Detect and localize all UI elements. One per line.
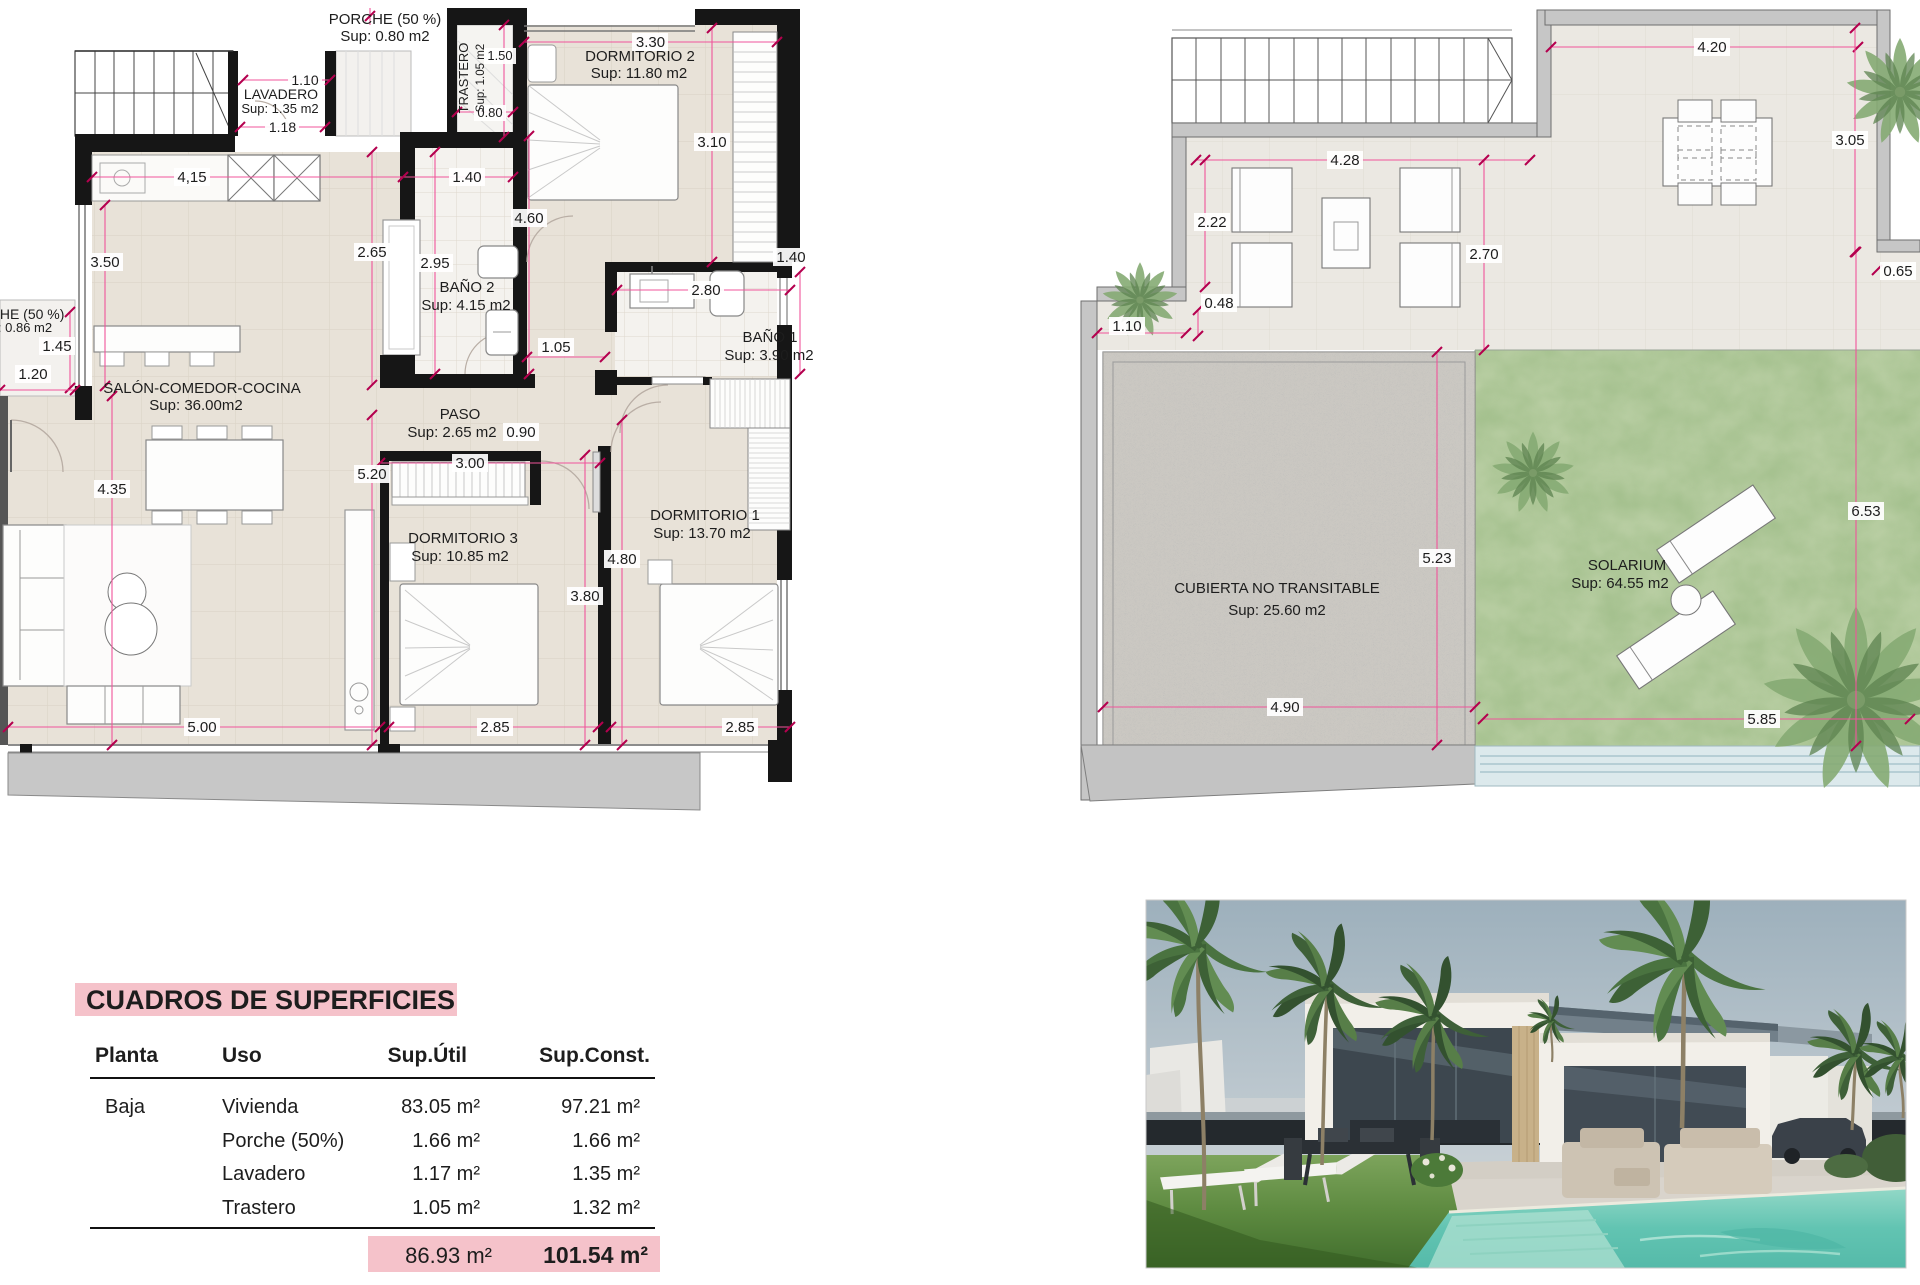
svg-text:BAÑO 1: BAÑO 1 <box>742 329 797 346</box>
svg-text:BAÑO 2: BAÑO 2 <box>439 279 494 296</box>
svg-text:2.65: 2.65 <box>357 244 386 261</box>
svg-text:2.85: 2.85 <box>725 719 754 736</box>
svg-text:CUADROS DE SUPERFICIES: CUADROS DE SUPERFICIES <box>86 985 455 1015</box>
svg-text:DORMITORIO 1: DORMITORIO 1 <box>650 507 760 524</box>
svg-text:1.10: 1.10 <box>1112 318 1141 335</box>
svg-text:1.18: 1.18 <box>269 119 296 135</box>
svg-text:Sup: 3.90 m2: Sup: 3.90 m2 <box>724 347 813 364</box>
svg-text:1.40: 1.40 <box>452 169 481 186</box>
svg-text:1.66 m²: 1.66 m² <box>412 1130 480 1152</box>
svg-text:Baja: Baja <box>105 1096 146 1118</box>
svg-text:4.35: 4.35 <box>97 481 126 498</box>
svg-text:Trastero: Trastero <box>222 1197 296 1219</box>
svg-text:PORCHE (50 %): PORCHE (50 %) <box>329 11 442 28</box>
svg-text:4.80: 4.80 <box>607 551 636 568</box>
svg-text:97.21 m²: 97.21 m² <box>561 1096 640 1118</box>
svg-text:5.20: 5.20 <box>357 466 386 483</box>
svg-text:Sup: 64.55 m2: Sup: 64.55 m2 <box>1571 575 1669 592</box>
svg-text:2.22: 2.22 <box>1197 214 1226 231</box>
svg-text:1.50: 1.50 <box>487 48 512 63</box>
svg-text:5.23: 5.23 <box>1422 550 1451 567</box>
svg-text:83.05 m²: 83.05 m² <box>401 1096 480 1118</box>
svg-text:Porche (50%): Porche (50%) <box>222 1130 344 1152</box>
svg-text:Lavadero: Lavadero <box>222 1163 305 1185</box>
svg-text:: 0.86 m2: : 0.86 m2 <box>0 320 52 335</box>
svg-text:4.90: 4.90 <box>1270 699 1299 716</box>
svg-text:1.40: 1.40 <box>776 249 805 266</box>
svg-text:Sup: 2.65 m2: Sup: 2.65 m2 <box>407 424 496 441</box>
svg-text:1.32 m²: 1.32 m² <box>572 1197 640 1219</box>
svg-text:2.70: 2.70 <box>1469 246 1498 263</box>
svg-text:Sup: 25.60 m2: Sup: 25.60 m2 <box>1228 602 1326 619</box>
svg-text:86.93 m²: 86.93 m² <box>405 1243 492 1268</box>
svg-text:Planta: Planta <box>95 1044 158 1067</box>
svg-text:Vivienda: Vivienda <box>222 1096 299 1118</box>
svg-text:Sup.Const.: Sup.Const. <box>539 1044 650 1067</box>
svg-text:3.80: 3.80 <box>570 588 599 605</box>
svg-text:DORMITORIO 3: DORMITORIO 3 <box>408 530 518 547</box>
svg-text:Sup: 11.80 m2: Sup: 11.80 m2 <box>591 65 687 82</box>
svg-text:6.53: 6.53 <box>1851 503 1880 520</box>
svg-text:Sup: 4.15 m2: Sup: 4.15 m2 <box>421 297 510 314</box>
svg-text:4,15: 4,15 <box>177 169 206 186</box>
svg-text:LAVADERO: LAVADERO <box>244 86 318 102</box>
svg-text:1.35 m²: 1.35 m² <box>572 1163 640 1185</box>
svg-text:4.20: 4.20 <box>1697 39 1726 56</box>
svg-text:1.66 m²: 1.66 m² <box>572 1130 640 1152</box>
svg-text:TRASTERO: TRASTERO <box>456 43 471 114</box>
svg-text:1.45: 1.45 <box>42 338 71 355</box>
svg-text:3.50: 3.50 <box>90 254 119 271</box>
svg-text:2.80: 2.80 <box>691 282 720 299</box>
svg-text:1.05: 1.05 <box>541 339 570 356</box>
svg-text:0.90: 0.90 <box>506 424 535 441</box>
svg-text:1.05 m²: 1.05 m² <box>412 1197 480 1219</box>
svg-text:SOLARIUM: SOLARIUM <box>1588 557 1666 574</box>
svg-text:Sup: 10.85 m2: Sup: 10.85 m2 <box>411 548 509 565</box>
svg-text:4.28: 4.28 <box>1330 152 1359 169</box>
svg-text:Uso: Uso <box>222 1044 262 1067</box>
svg-text:3.10: 3.10 <box>697 134 726 151</box>
svg-text:Sup: 36.00m2: Sup: 36.00m2 <box>149 397 242 414</box>
svg-text:3.05: 3.05 <box>1835 132 1864 149</box>
svg-text:101.54 m²: 101.54 m² <box>543 1242 648 1268</box>
svg-text:CUBIERTA NO TRANSITABLE: CUBIERTA NO TRANSITABLE <box>1174 580 1380 597</box>
svg-text:Sup: 13.70 m2: Sup: 13.70 m2 <box>653 525 751 542</box>
svg-text:4.60: 4.60 <box>514 210 543 227</box>
svg-text:5.00: 5.00 <box>187 719 216 736</box>
svg-text:PASO: PASO <box>440 406 481 423</box>
svg-text:5.85: 5.85 <box>1747 711 1776 728</box>
svg-text:1.17 m²: 1.17 m² <box>412 1163 480 1185</box>
svg-text:Sup: 1.05 m2: Sup: 1.05 m2 <box>475 44 487 112</box>
svg-text:Sup: 1.35 m2: Sup: 1.35 m2 <box>241 101 318 116</box>
svg-text:1.20: 1.20 <box>18 366 47 383</box>
svg-text:SALÓN-COMEDOR-COCINA: SALÓN-COMEDOR-COCINA <box>103 380 301 397</box>
svg-text:0.65: 0.65 <box>1883 263 1912 280</box>
svg-text:2.85: 2.85 <box>480 719 509 736</box>
svg-text:Sup: 0.80 m2: Sup: 0.80 m2 <box>340 28 429 45</box>
svg-text:3.00: 3.00 <box>455 455 484 472</box>
svg-text:2.95: 2.95 <box>420 255 449 272</box>
svg-text:Sup.Útil: Sup.Útil <box>388 1043 467 1067</box>
svg-text:0.48: 0.48 <box>1204 295 1233 312</box>
svg-text:DORMITORIO 2: DORMITORIO 2 <box>585 48 695 65</box>
